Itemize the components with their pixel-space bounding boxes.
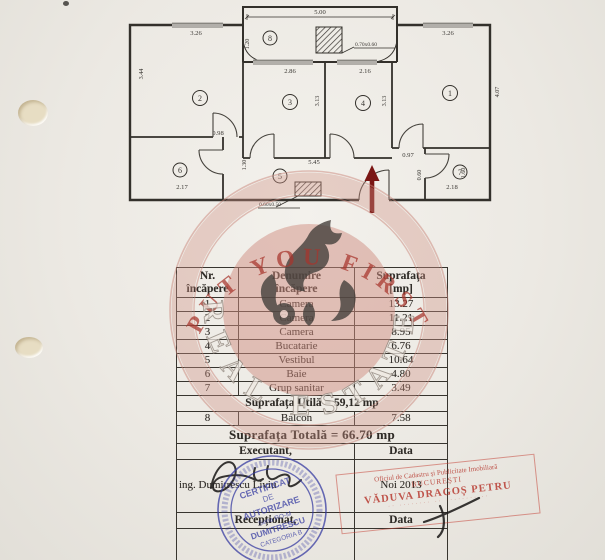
dim-room6-width: 2.17 — [176, 184, 188, 191]
dim-room4-height: 3.13 — [381, 96, 388, 107]
room-number-3: 3 — [283, 95, 298, 110]
dim-mid-left: 0.98 — [212, 130, 224, 137]
dim-balcony-side: 1.20 — [244, 39, 251, 50]
punch-hole-bottom — [15, 337, 43, 358]
header-nr: Nr.încăpere — [187, 270, 229, 294]
svg-text:1: 1 — [448, 89, 452, 98]
table-row: 2Camera11.21 — [177, 312, 448, 326]
floor-plan-drawing: 0.70x0.60 0.60x0.50 5.00 3.26 3.26 2.86 … — [118, 2, 510, 226]
cell-name: Grup sanitar — [239, 382, 355, 396]
cell-nr: 7 — [177, 382, 239, 396]
room-number-4: 4 — [356, 96, 371, 111]
svg-text:7: 7 — [458, 168, 462, 177]
cell-area: 7.58 — [355, 412, 448, 426]
cell-area: 6.76 — [355, 340, 448, 354]
cell-area: 10.64 — [355, 354, 448, 368]
cell-area: 3.49 — [355, 382, 448, 396]
cell-name: Bucatarie — [239, 340, 355, 354]
table-row: 5Vestibul10.64 — [177, 354, 448, 368]
room-number-1: 1 — [443, 86, 458, 101]
dim-top-right: 3.26 — [442, 30, 454, 37]
table-row: 1Camera13.27 — [177, 298, 448, 312]
shaft-label-bottom: 0.60x0.50 — [259, 202, 281, 208]
cell-area: 4.80 — [355, 368, 448, 382]
total-area: Suprafața Totală = 66.70 mp — [177, 426, 448, 444]
scan-speck — [63, 1, 69, 6]
svg-text:5: 5 — [278, 172, 282, 181]
cell-nr: 6 — [177, 368, 239, 382]
svg-text:4: 4 — [361, 99, 365, 108]
svg-text:8: 8 — [268, 34, 272, 43]
table-row: 3Camera8.95 — [177, 326, 448, 340]
cell-name: Camera — [239, 298, 355, 312]
cell-nr: 3 — [177, 326, 239, 340]
receptionat-label: Recepționat, — [177, 513, 355, 529]
receptionat-data-label: Data — [355, 513, 448, 529]
room-number-2: 2 — [193, 91, 208, 106]
dim-room4-width: 2.16 — [359, 68, 371, 75]
dim-hall-height: 1.30 — [241, 160, 248, 171]
dim-room3-height: 3.13 — [314, 96, 321, 107]
cell-nr: 2 — [177, 312, 239, 326]
dim-balcony-width: 5.00 — [314, 9, 326, 16]
balcony-row: 8Balcon7.58 — [177, 412, 448, 426]
executant-row: ing. Dumitrescu Liviu Noi 2013 — [177, 460, 448, 513]
svg-text:2: 2 — [198, 94, 202, 103]
dim-top-left: 3.26 — [190, 30, 202, 37]
executant-data-label: Data — [355, 444, 448, 460]
executant-label: Executant, — [177, 444, 355, 460]
shaft-label-top: 0.70x0.60 — [355, 42, 377, 48]
scanned-document-page: 0.70x0.60 0.60x0.50 5.00 3.26 3.26 2.86 … — [0, 0, 605, 560]
room-number-5: 5 — [273, 169, 287, 183]
cell-area: 11.21 — [355, 312, 448, 326]
walls — [130, 7, 490, 200]
table-row: 4Bucatarie6.76 — [177, 340, 448, 354]
cell-name: Camera — [239, 312, 355, 326]
header-denumire: Denumireîncăpere — [272, 270, 321, 294]
cell-nr: 4 — [177, 340, 239, 354]
cell-name: Vestibul — [239, 354, 355, 368]
empty-cell — [177, 529, 355, 560]
dim-room2-height: 3.44 — [138, 69, 145, 80]
svg-text:6: 6 — [178, 166, 182, 175]
dim-room7-left: 0.60 — [416, 170, 423, 181]
room-number-6: 6 — [173, 163, 187, 177]
executant-name: ing. Dumitrescu Liviu — [177, 460, 355, 513]
useful-area-total: Suprafața Utilă = 59,12 mp — [177, 396, 448, 412]
total-area-row: Suprafața Totală = 66.70 mp — [177, 426, 448, 444]
dim-mid-right: 0.97 — [402, 152, 414, 159]
cell-name: Balcon — [239, 412, 355, 426]
empty-row — [177, 529, 448, 560]
table-header-row: Nr.încăpere Denumireîncăpere Suprafața[m… — [177, 268, 448, 298]
receptionat-row: Recepționat, Data — [177, 513, 448, 529]
area-table: Nr.încăpere Denumireîncăpere Suprafața[m… — [176, 267, 448, 560]
executant-header-row: Executant, Data — [177, 444, 448, 460]
dim-room7-width: 2.18 — [446, 184, 458, 191]
dim-room1-height: 4.07 — [494, 87, 501, 98]
cell-name: Camera — [239, 326, 355, 340]
cell-name: Baie — [239, 368, 355, 382]
cell-nr: 1 — [177, 298, 239, 312]
cell-area: 13.27 — [355, 298, 448, 312]
room-number-8: 8 — [263, 31, 277, 45]
table-row: 6Baie4.80 — [177, 368, 448, 382]
table-row: 7Grup sanitar3.49 — [177, 382, 448, 396]
svg-text:3: 3 — [288, 98, 292, 107]
cell-area: 8.95 — [355, 326, 448, 340]
punch-hole-top — [18, 100, 48, 126]
executant-date: Noi 2013 — [355, 460, 448, 513]
header-suprafata: Suprafața[mp] — [376, 270, 425, 294]
empty-cell — [355, 529, 448, 560]
dim-room3-width: 2.86 — [284, 68, 296, 75]
dim-hall-width: 5.45 — [308, 159, 320, 166]
cell-nr: 8 — [177, 412, 239, 426]
cell-nr: 5 — [177, 354, 239, 368]
useful-area-row: Suprafața Utilă = 59,12 mp — [177, 396, 448, 412]
